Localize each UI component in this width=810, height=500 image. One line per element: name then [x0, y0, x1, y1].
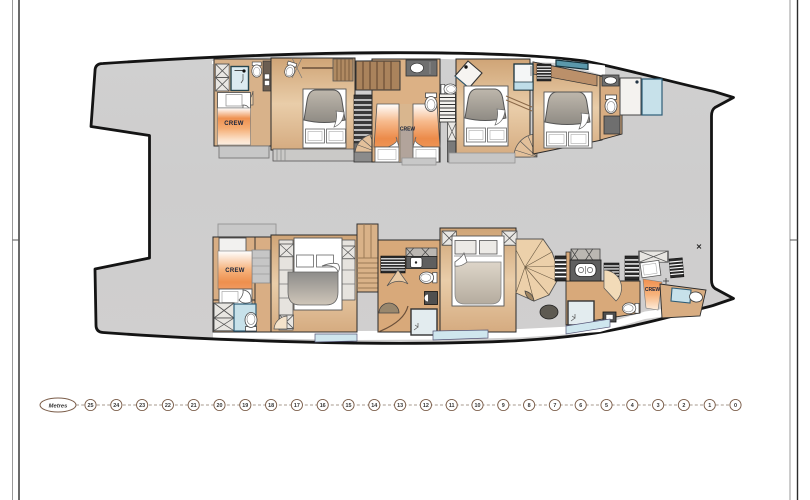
svg-text:23: 23: [139, 403, 145, 409]
svg-text:25: 25: [88, 403, 94, 409]
svg-text:13: 13: [397, 403, 403, 409]
svg-text:18: 18: [268, 403, 274, 409]
svg-text:5: 5: [605, 403, 608, 409]
svg-text:19: 19: [242, 403, 248, 409]
svg-text:17: 17: [294, 403, 300, 409]
svg-text:11: 11: [449, 403, 455, 409]
svg-text:21: 21: [191, 403, 197, 409]
svg-text:8: 8: [528, 403, 531, 409]
svg-text:15: 15: [346, 403, 352, 409]
svg-text:7: 7: [553, 403, 556, 409]
svg-text:16: 16: [320, 403, 326, 409]
svg-text:Metres: Metres: [49, 403, 68, 409]
svg-text:4: 4: [631, 403, 634, 409]
svg-text:0: 0: [734, 403, 737, 409]
svg-text:9: 9: [502, 403, 505, 409]
svg-text:24: 24: [113, 403, 119, 409]
svg-text:12: 12: [423, 403, 429, 409]
svg-text:20: 20: [217, 403, 223, 409]
svg-text:2: 2: [682, 403, 685, 409]
svg-text:CREW: CREW: [400, 127, 416, 133]
svg-text:CREW: CREW: [225, 268, 245, 274]
svg-text:10: 10: [475, 403, 481, 409]
svg-text:22: 22: [165, 403, 171, 409]
svg-text:CREW: CREW: [224, 121, 244, 127]
svg-text:14: 14: [371, 403, 377, 409]
svg-text:3: 3: [657, 403, 660, 409]
svg-text:1: 1: [708, 403, 711, 409]
svg-text:6: 6: [579, 403, 582, 409]
svg-text:CREW: CREW: [645, 287, 661, 293]
